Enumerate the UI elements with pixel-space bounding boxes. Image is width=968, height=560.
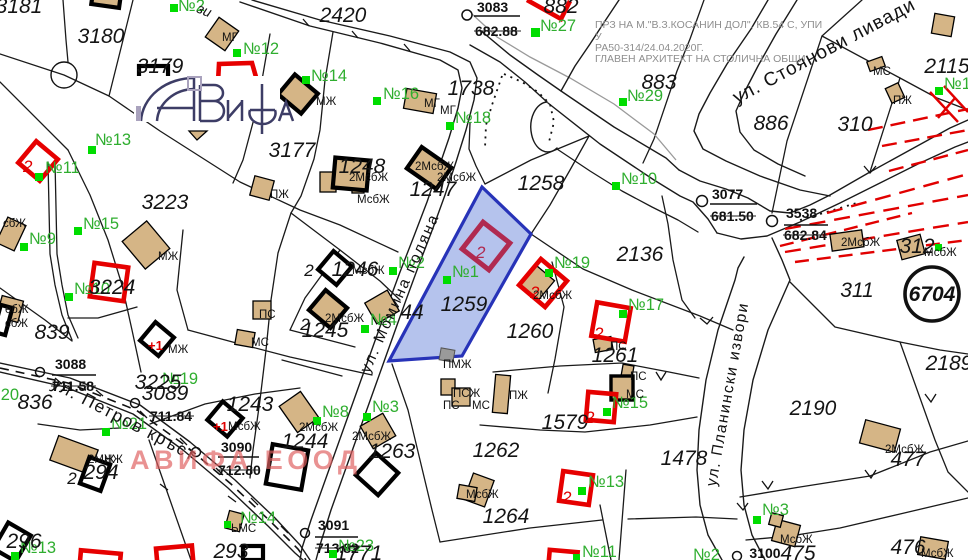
svg-text:3077: 3077 — [712, 186, 743, 202]
svg-text:2МсбЖ: 2МсбЖ — [885, 444, 924, 456]
svg-text:3179: 3179 — [137, 55, 184, 78]
svg-text:ПЖ: ПЖ — [893, 95, 912, 107]
svg-text:2: 2 — [593, 324, 604, 343]
svg-text:+1: +1 — [148, 338, 163, 353]
svg-text:№13: №13 — [95, 131, 131, 149]
svg-text:3538: 3538 — [786, 205, 817, 221]
svg-text:3181: 3181 — [0, 0, 42, 18]
svg-text:3177: 3177 — [269, 139, 317, 162]
svg-text:1738: 1738 — [448, 77, 495, 100]
svg-text:2: 2 — [475, 243, 486, 262]
svg-text:№3: №3 — [372, 398, 399, 416]
svg-text:МЖ: МЖ — [158, 251, 179, 263]
svg-text:ебЖ: ебЖ — [5, 304, 29, 316]
svg-text:сбЖ: сбЖ — [5, 318, 28, 330]
svg-text:№10: №10 — [621, 170, 657, 188]
svg-text:3224: 3224 — [89, 276, 136, 299]
svg-text:+1: +1 — [213, 419, 228, 434]
svg-text:1264: 1264 — [483, 505, 530, 528]
svg-text:2МсбЖ: 2МсбЖ — [533, 290, 572, 302]
svg-text:МС: МС — [251, 337, 269, 349]
svg-text:МсбЖ: МсбЖ — [352, 265, 385, 277]
svg-text:883: 883 — [641, 71, 676, 94]
svg-text:1263: 1263 — [369, 440, 416, 463]
svg-text:МЖ: МЖ — [168, 344, 189, 356]
svg-text:№2: №2 — [693, 546, 720, 560]
svg-text:2420: 2420 — [319, 4, 367, 27]
svg-text:№20: №20 — [0, 386, 19, 404]
svg-text:сбЖ: сбЖ — [3, 218, 26, 230]
svg-text:2МсбЖ: 2МсбЖ — [352, 431, 391, 443]
svg-text:№8: №8 — [322, 403, 349, 421]
svg-text:МГ: МГ — [222, 32, 239, 44]
svg-text:293: 293 — [212, 540, 248, 560]
svg-text:МсбЖ: МсбЖ — [228, 421, 261, 433]
svg-text:6704: 6704 — [909, 283, 956, 306]
svg-text:1243: 1243 — [227, 393, 274, 416]
svg-text:МсбЖ: МсбЖ — [780, 534, 813, 546]
svg-text:ПЖ: ПЖ — [509, 390, 528, 402]
svg-text:2190: 2190 — [789, 397, 837, 420]
svg-text:ПС: ПС — [443, 400, 460, 412]
svg-text:№9: №9 — [29, 230, 56, 248]
svg-text:3091: 3091 — [318, 517, 349, 533]
svg-text:НЖ: НЖ — [104, 454, 123, 466]
svg-text:1579: 1579 — [542, 411, 589, 434]
svg-text:3100: 3100 — [749, 545, 780, 560]
svg-text:296: 296 — [5, 530, 41, 553]
svg-text:МС: МС — [626, 389, 644, 401]
svg-text:АВИФА ЕООД: АВИФА ЕООД — [130, 445, 362, 475]
svg-text:1260: 1260 — [507, 320, 554, 343]
svg-text:МС: МС — [472, 400, 490, 412]
svg-text:МсбЖ: МсбЖ — [924, 247, 957, 259]
svg-text:1258: 1258 — [518, 172, 565, 195]
svg-text:ПЖ: ПЖ — [270, 189, 289, 201]
svg-text:МсбЖ: МсбЖ — [466, 489, 499, 501]
svg-text:№3: №3 — [762, 501, 789, 519]
svg-text:ПМЖ: ПМЖ — [443, 359, 472, 371]
svg-text:МГ: МГ — [440, 105, 457, 117]
svg-text:2: 2 — [584, 408, 595, 427]
svg-text:ПС: ПС — [259, 309, 276, 321]
svg-text:2: 2 — [299, 315, 310, 334]
svg-text:2МсбЖ: 2МсбЖ — [841, 237, 880, 249]
svg-text:МГ: МГ — [424, 98, 441, 110]
svg-text:ПРЗ НА М."В.З.КОСАНИН ДОЛ", КВ: ПРЗ НА М."В.З.КОСАНИН ДОЛ", КВ.54 С, УПИ — [595, 19, 822, 31]
svg-text:1771: 1771 — [336, 542, 383, 560]
svg-text:№19: №19 — [554, 254, 590, 272]
svg-text:2МсбЖ: 2МсбЖ — [299, 422, 338, 434]
svg-text:№1: №1 — [452, 263, 479, 281]
svg-text:МсбЖ: МсбЖ — [921, 548, 954, 560]
svg-text:3083: 3083 — [477, 0, 508, 15]
svg-text:№11: №11 — [45, 159, 80, 177]
svg-text:№13: №13 — [588, 473, 624, 491]
svg-text:886: 886 — [753, 112, 788, 135]
svg-text:ПСЖ: ПСЖ — [453, 388, 481, 400]
svg-text:2: 2 — [66, 469, 77, 488]
svg-text:2115: 2115 — [923, 55, 968, 78]
svg-text:№14: №14 — [311, 67, 347, 85]
svg-text:ПС: ПС — [630, 371, 647, 383]
svg-text:2: 2 — [561, 488, 572, 507]
svg-text:№27: №27 — [540, 17, 576, 35]
svg-text:3223: 3223 — [142, 191, 189, 214]
svg-text:№18: №18 — [455, 109, 491, 127]
svg-text:1262: 1262 — [473, 439, 520, 462]
svg-text:№15: №15 — [83, 215, 119, 233]
svg-text:№17: №17 — [628, 296, 664, 314]
svg-text:2189: 2189 — [925, 352, 968, 375]
svg-text:839: 839 — [34, 321, 69, 344]
svg-text:№12: №12 — [243, 40, 279, 58]
svg-text:882: 882 — [543, 0, 578, 18]
svg-text:311: 311 — [840, 279, 873, 302]
svg-text:310: 310 — [837, 113, 872, 136]
svg-text:1259: 1259 — [441, 293, 488, 316]
svg-text:2МсбЖ: 2МсбЖ — [349, 172, 388, 184]
svg-text:2МсбЖ: 2МсбЖ — [325, 313, 364, 325]
svg-text:ГЛАВЕН АРХИТЕКТ НА СТОЛИЧНА ОБ: ГЛАВЕН АРХИТЕКТ НА СТОЛИЧНА ОБЩИ — [595, 53, 806, 65]
svg-text:3180: 3180 — [78, 25, 125, 48]
svg-text:2МсбЖ: 2МсбЖ — [437, 172, 476, 184]
svg-text:ПС: ПС — [610, 341, 627, 353]
svg-text:МС: МС — [873, 66, 891, 78]
svg-text:836: 836 — [17, 391, 52, 414]
svg-text:3088: 3088 — [55, 356, 86, 372]
svg-text:МсбЖ: МсбЖ — [357, 194, 390, 206]
svg-text:2136: 2136 — [616, 243, 664, 266]
svg-text:МЖ: МЖ — [316, 96, 337, 108]
svg-text:2: 2 — [22, 157, 33, 176]
svg-text:3089: 3089 — [142, 382, 189, 405]
svg-text:1478: 1478 — [661, 447, 708, 470]
svg-text:2: 2 — [303, 261, 314, 280]
svg-text:№16: №16 — [383, 85, 419, 103]
svg-text:№11: №11 — [582, 543, 617, 560]
svg-text:ЬМС: ЬМС — [231, 523, 256, 535]
